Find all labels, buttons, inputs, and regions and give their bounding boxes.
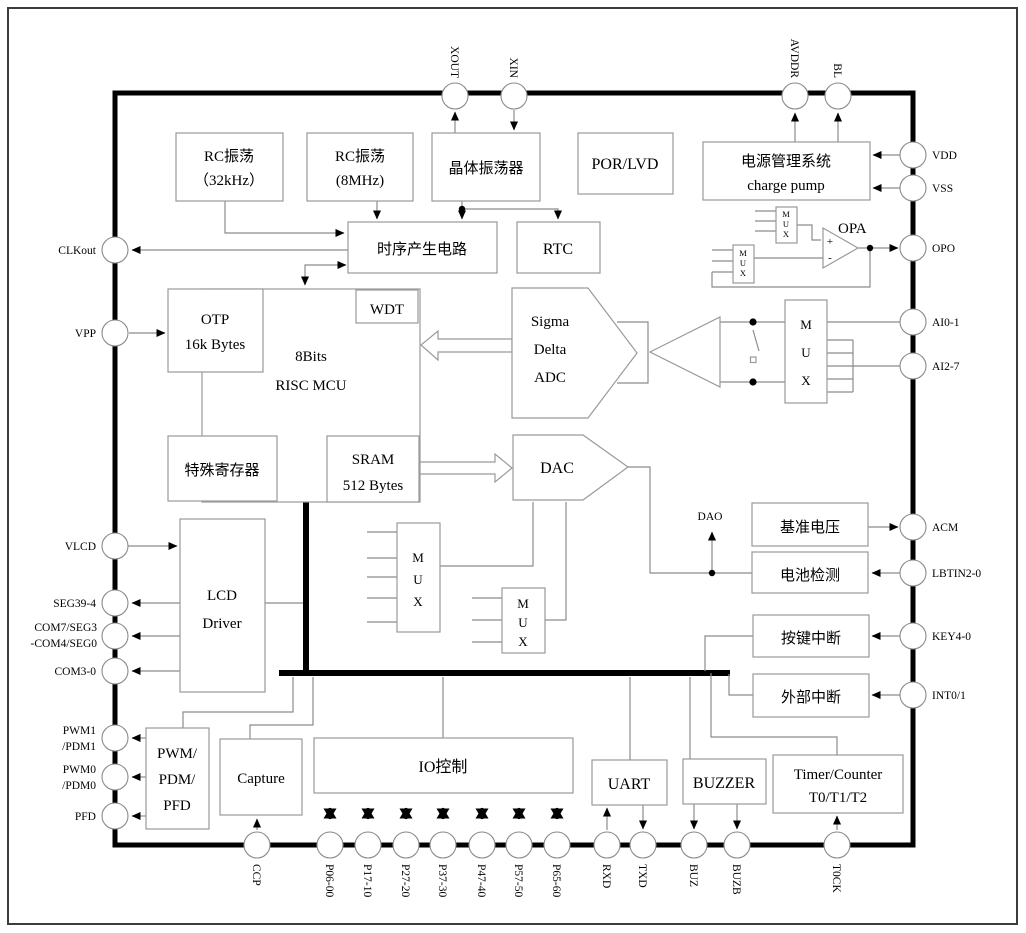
block-lcd-driver: LCD Driver <box>180 519 265 692</box>
svg-text:PFD: PFD <box>75 811 96 823</box>
mcu-block-diagram: RC振荡 （32kHz） RC振荡 (8MHz) 晶体振荡器 POR/LVD 电… <box>0 0 1026 933</box>
svg-text:X: X <box>801 373 811 388</box>
wire-timing-mcu <box>305 265 346 285</box>
block-rc-osc-8mhz: RC振荡 (8MHz) <box>307 133 413 201</box>
svg-text:M: M <box>517 596 529 611</box>
svg-text:Driver: Driver <box>202 616 241 632</box>
svg-text:POR/LVD: POR/LVD <box>592 156 659 173</box>
svg-text:RTC: RTC <box>543 241 573 258</box>
svg-text:P27-20: P27-20 <box>399 864 411 897</box>
svg-text:基准电压: 基准电压 <box>780 519 840 536</box>
block-timing-gen: 时序产生电路 <box>348 222 497 273</box>
block-uart: UART <box>592 760 667 805</box>
svg-text:BUZZER: BUZZER <box>693 775 756 792</box>
svg-text:RISC MCU: RISC MCU <box>275 378 346 394</box>
svg-text:-: - <box>828 252 832 264</box>
svg-text:BUZB: BUZB <box>730 864 742 895</box>
svg-text:Delta: Delta <box>534 342 567 358</box>
pin-avddr <box>782 83 808 109</box>
pin-xout <box>442 83 468 109</box>
block-io-control: IO控制 <box>314 738 573 793</box>
svg-text:M: M <box>782 209 790 219</box>
pin-p47-40 <box>469 832 495 858</box>
wire-rc32k-to-timing <box>225 201 344 233</box>
pin-p27-20 <box>393 832 419 858</box>
pin-pwm1-pdm1 <box>102 725 128 751</box>
svg-text:Capture: Capture <box>237 771 285 787</box>
pin-ai2-7 <box>900 353 926 379</box>
pin-pwm0-pdm0 <box>102 764 128 790</box>
block-key-interrupt: 按键中断 <box>753 615 869 657</box>
svg-text:VPP: VPP <box>75 328 96 340</box>
svg-text:AVDDR: AVDDR <box>788 39 800 79</box>
svg-text:AI2-7: AI2-7 <box>932 361 960 373</box>
svg-text:Timer/Counter: Timer/Counter <box>794 767 883 783</box>
svg-text:P37-30: P37-30 <box>436 864 448 897</box>
pins-left: CLKout VPP VLCD SEG39-4 COM7/SEG3 -COM4/… <box>31 237 128 829</box>
pin-p65-60 <box>544 832 570 858</box>
svg-text:(8MHz): (8MHz) <box>336 173 384 189</box>
pin-seg39-4 <box>102 590 128 616</box>
svg-text:特殊寄存器: 特殊寄存器 <box>184 461 259 479</box>
block-timer: Timer/Counter T0/T1/T2 <box>773 755 903 813</box>
svg-text:PFD: PFD <box>163 798 191 814</box>
pin-rxd <box>594 832 620 858</box>
svg-text:P06-00: P06-00 <box>323 864 335 897</box>
io-port-arrows <box>330 808 557 819</box>
svg-text:ACM: ACM <box>932 522 958 534</box>
svg-text:VLCD: VLCD <box>65 541 96 553</box>
svg-text:CCP: CCP <box>250 864 262 886</box>
dao-label: DAO <box>698 511 723 523</box>
svg-text:电池检测: 电池检测 <box>780 567 840 584</box>
svg-text:U: U <box>801 345 811 360</box>
block-power-mgmt: 电源管理系统 charge pump <box>703 142 870 200</box>
svg-text:T0CK: T0CK <box>830 864 842 893</box>
svg-text:外部中断: 外部中断 <box>781 689 841 706</box>
block-dac-mux-2: M U X <box>502 588 545 653</box>
svg-text:VDD: VDD <box>932 150 957 162</box>
svg-text:P47-40: P47-40 <box>475 864 487 897</box>
diagram-canvas: RC振荡 （32kHz） RC振荡 (8MHz) 晶体振荡器 POR/LVD 电… <box>0 0 1026 933</box>
svg-text:IO控制: IO控制 <box>419 758 468 776</box>
pin-bl <box>825 83 851 109</box>
svg-text:SRAM: SRAM <box>352 452 395 468</box>
pin-buzb <box>724 832 750 858</box>
svg-text:RC振荡: RC振荡 <box>204 148 254 165</box>
svg-text:按键中断: 按键中断 <box>781 630 841 647</box>
block-otp: OTP 16k Bytes <box>168 289 263 372</box>
svg-text:T0/T1/T2: T0/T1/T2 <box>809 790 867 806</box>
svg-text:RC振荡: RC振荡 <box>335 148 385 165</box>
svg-text:UART: UART <box>608 776 651 793</box>
svg-text:U: U <box>413 572 423 587</box>
pin-p06-00 <box>317 832 343 858</box>
svg-text:P65-60: P65-60 <box>550 864 562 897</box>
pin-vss <box>900 175 926 201</box>
svg-text:16k Bytes: 16k Bytes <box>185 337 246 353</box>
pin-int0-1 <box>900 682 926 708</box>
svg-text:时序产生电路: 时序产生电路 <box>377 241 467 258</box>
pin-ai0-1 <box>900 309 926 335</box>
hollow-arrow-sram-to-dac <box>419 454 512 482</box>
block-pwm: PWM/ PDM/ PFD <box>146 728 209 829</box>
svg-text:M: M <box>800 317 812 332</box>
pin-acm <box>900 514 926 540</box>
block-adc-mux: M U X <box>785 300 827 403</box>
svg-text:U: U <box>783 219 789 229</box>
pin-p57-50 <box>506 832 532 858</box>
pin-clkout <box>102 237 128 263</box>
svg-text:U: U <box>518 615 528 630</box>
block-dac: DAC <box>513 435 628 500</box>
svg-text:TXD: TXD <box>636 864 648 888</box>
svg-text:/PDM0: /PDM0 <box>62 780 96 792</box>
block-rtc: RTC <box>517 222 600 273</box>
pin-buz <box>681 832 707 858</box>
svg-text:INT0/1: INT0/1 <box>932 690 966 702</box>
pin-lbtin2-0 <box>900 560 926 586</box>
svg-text:RXD: RXD <box>600 864 612 888</box>
svg-text:X: X <box>413 594 423 609</box>
pin-key4-0 <box>900 623 926 649</box>
pin-pfd <box>102 803 128 829</box>
svg-text:8Bits: 8Bits <box>295 349 327 365</box>
svg-text:SEG39-4: SEG39-4 <box>53 598 96 610</box>
pin-com3-0 <box>102 658 128 684</box>
pga-triangle <box>650 317 720 387</box>
svg-text:电源管理系统: 电源管理系统 <box>741 153 831 170</box>
svg-text:PWM0: PWM0 <box>63 764 96 776</box>
svg-text:XOUT: XOUT <box>448 46 460 78</box>
svg-text:Sigma: Sigma <box>531 314 570 330</box>
pin-vlcd <box>102 533 128 559</box>
block-crystal-osc: 晶体振荡器 <box>432 133 540 201</box>
pins-bottom: CCP P06-00 P17-10 P27-20 P37-30 P47-40 P… <box>244 832 850 897</box>
svg-text:charge pump: charge pump <box>747 178 825 194</box>
pin-vpp <box>102 320 128 346</box>
pin-p17-10 <box>355 832 381 858</box>
svg-text:WDT: WDT <box>370 302 404 318</box>
block-por-lvd: POR/LVD <box>578 133 673 194</box>
block-capture: Capture <box>220 739 302 815</box>
svg-text:-COM4/SEG0: -COM4/SEG0 <box>31 638 98 650</box>
pin-p37-30 <box>430 832 456 858</box>
block-ext-interrupt: 外部中断 <box>753 674 869 717</box>
block-sram: SRAM 512 Bytes <box>327 436 419 502</box>
svg-text:PWM/: PWM/ <box>157 746 198 762</box>
svg-text:PDM/: PDM/ <box>159 772 197 788</box>
pin-opo <box>900 235 926 261</box>
svg-text:M: M <box>739 248 747 258</box>
block-battery-detect: 电池检测 <box>752 552 868 593</box>
adc-shape <box>512 288 637 418</box>
svg-text:KEY4-0: KEY4-0 <box>932 631 971 643</box>
svg-text:X: X <box>740 268 746 278</box>
wire-crystal-to-rtc <box>462 209 558 219</box>
svg-text:BUZ: BUZ <box>687 864 699 887</box>
svg-text:COM3-0: COM3-0 <box>54 666 96 678</box>
svg-text:DAC: DAC <box>540 460 574 477</box>
svg-text:COM7/SEG3: COM7/SEG3 <box>34 622 97 634</box>
svg-text:LCD: LCD <box>207 588 237 604</box>
svg-text:P17-10: P17-10 <box>361 864 373 897</box>
block-vref: 基准电压 <box>752 503 868 546</box>
svg-text:ADC: ADC <box>534 370 566 386</box>
svg-text:AI0-1: AI0-1 <box>932 317 960 329</box>
svg-text:OTP: OTP <box>201 312 229 328</box>
opa-section: M U X M U X + - OPA <box>733 207 867 283</box>
svg-text:X: X <box>518 634 528 649</box>
svg-text:VSS: VSS <box>932 183 953 195</box>
svg-text:M: M <box>412 550 424 565</box>
svg-text:PWM1: PWM1 <box>63 725 96 737</box>
svg-text:U: U <box>740 258 746 268</box>
hollow-arrow-adc-to-mcu <box>421 331 512 360</box>
pins-top: XOUT XIN AVDDR BL <box>442 39 851 109</box>
svg-text:XIN: XIN <box>507 58 519 79</box>
svg-text:LBTIN2-0: LBTIN2-0 <box>932 568 981 580</box>
svg-text:晶体振荡器: 晶体振荡器 <box>448 160 523 177</box>
block-special-reg: 特殊寄存器 <box>168 436 277 501</box>
block-wdt: WDT <box>356 290 418 323</box>
block-buzzer: BUZZER <box>683 759 766 804</box>
svg-text:BL: BL <box>831 63 843 78</box>
svg-text:+: + <box>827 236 833 248</box>
block-dac-mux-1: M U X <box>397 523 440 632</box>
block-sigma-delta-adc: Sigma Delta ADC <box>512 288 637 418</box>
pin-xin <box>501 83 527 109</box>
svg-text:CLKout: CLKout <box>58 245 97 257</box>
svg-text:512 Bytes: 512 Bytes <box>343 478 404 494</box>
pin-com7-seg3 <box>102 623 128 649</box>
svg-text:（32kHz）: （32kHz） <box>194 172 264 189</box>
block-rc-osc-32k: RC振荡 （32kHz） <box>176 133 283 201</box>
pin-t0ck <box>824 832 850 858</box>
analog-switch <box>751 357 757 363</box>
svg-text:OPO: OPO <box>932 243 955 255</box>
pin-ccp <box>244 832 270 858</box>
pin-txd <box>630 832 656 858</box>
svg-text:X: X <box>783 229 789 239</box>
pin-vdd <box>900 142 926 168</box>
svg-text:/PDM1: /PDM1 <box>62 741 96 753</box>
svg-text:P57-50: P57-50 <box>512 864 524 897</box>
opa-label: OPA <box>838 221 867 237</box>
